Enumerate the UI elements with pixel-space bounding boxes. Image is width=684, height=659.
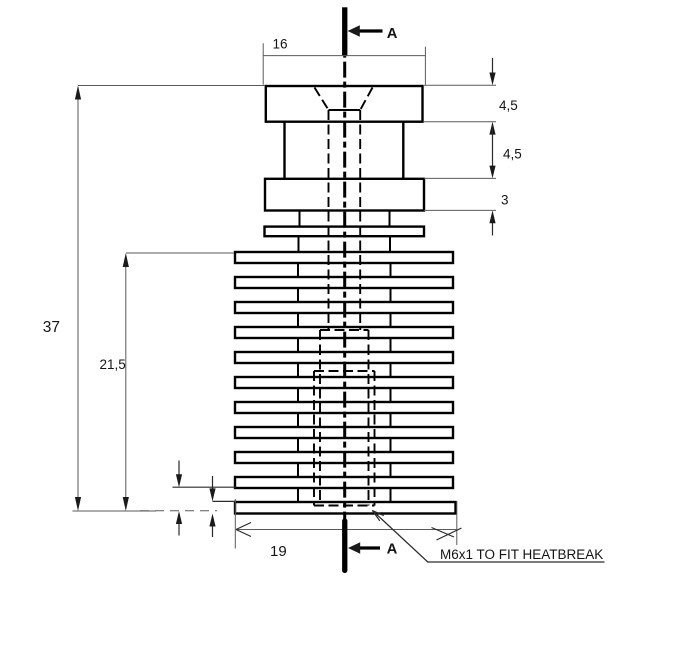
svg-text:21,5: 21,5: [100, 357, 126, 372]
svg-text:4,5: 4,5: [499, 98, 518, 113]
svg-text:3: 3: [501, 193, 509, 208]
svg-text:19: 19: [270, 543, 287, 560]
svg-text:4,5: 4,5: [503, 147, 522, 162]
svg-text:M6x1 TO FIT HEATBREAK: M6x1 TO FIT HEATBREAK: [440, 547, 603, 562]
svg-text:A: A: [387, 26, 398, 42]
svg-text:16: 16: [273, 37, 288, 52]
svg-text:37: 37: [43, 319, 60, 336]
svg-text:A: A: [387, 542, 398, 558]
